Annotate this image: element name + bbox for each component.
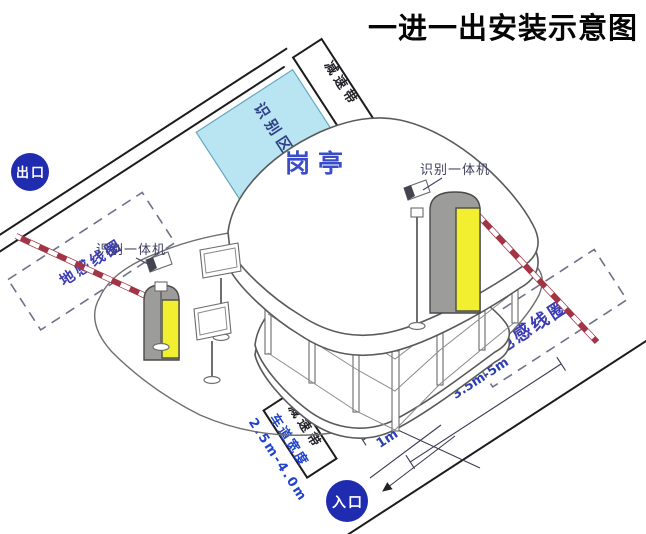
loop-distance-tick-left: [406, 455, 415, 468]
loop-distance-tick-right: [557, 357, 566, 370]
entrance-barrier-machine-front: [456, 208, 480, 311]
exit-badge: 出口: [11, 153, 49, 191]
installation-diagram: 地感线圈 识别区域 减速带 减速带 车道宽度 2.5m-4.0m 识别区域 1m…: [0, 0, 646, 534]
exit-badge-text: 出口: [16, 165, 46, 181]
entrance-cross-line-a: [383, 436, 455, 491]
entrance-badge-text: 入口: [332, 495, 364, 511]
entrance-camera-label: 识别一体机: [420, 163, 490, 178]
booth-label: 岗亭: [285, 149, 351, 178]
sign-board-lower: [194, 302, 231, 384]
page-title: 一进一出安装示意图: [368, 11, 638, 45]
entrance-badge: 入口: [326, 480, 368, 522]
diagram-page: 地感线圈 识别区域 减速带 减速带 车道宽度 2.5m-4.0m 识别区域 1m…: [0, 0, 646, 534]
exit-camera-label: 识别一体机: [96, 243, 166, 258]
